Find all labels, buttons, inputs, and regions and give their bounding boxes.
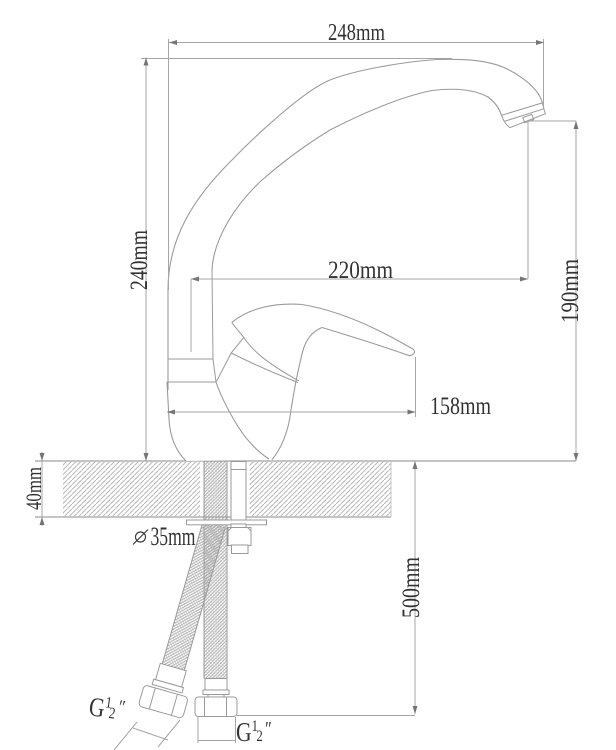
svg-text:158mm: 158mm [430, 393, 491, 420]
svg-text:190mm: 190mm [557, 259, 584, 323]
svg-text:500mm: 500mm [398, 557, 425, 618]
svg-text:240mm: 240mm [126, 230, 153, 290]
svg-text:248mm: 248mm [328, 20, 385, 46]
svg-text:220mm: 220mm [328, 257, 393, 284]
svg-text:35mm: 35mm [151, 522, 196, 551]
svg-text:40mm: 40mm [21, 467, 46, 510]
